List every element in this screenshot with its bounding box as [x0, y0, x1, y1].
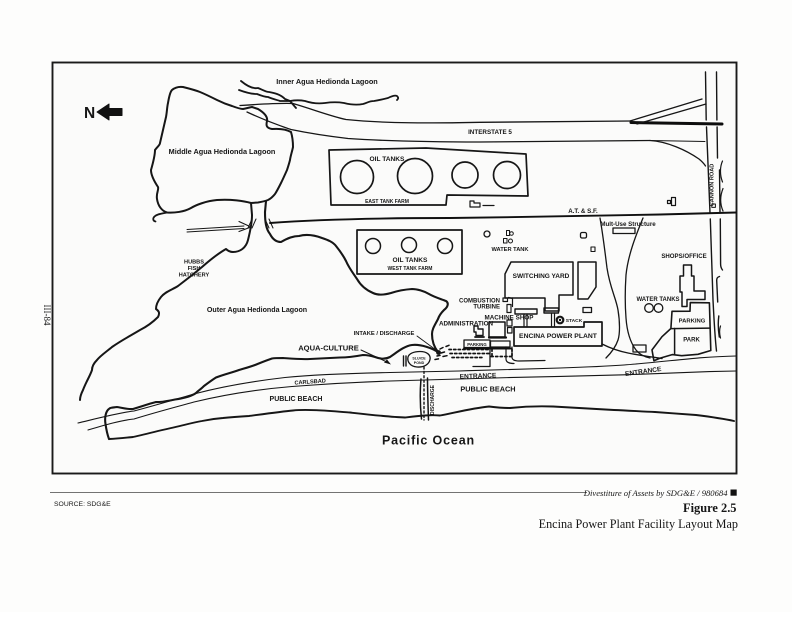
- svg-text:CANNON ROAD: CANNON ROAD: [710, 164, 716, 207]
- svg-text:STACK: STACK: [566, 318, 583, 324]
- svg-text:SWITCHING YARD: SWITCHING YARD: [513, 273, 570, 280]
- svg-text:EAST TANK FARM: EAST TANK FARM: [365, 199, 409, 205]
- svg-text:SOURCE: SDG&E: SOURCE: SDG&E: [54, 501, 111, 508]
- svg-text:WEST TANK FARM: WEST TANK FARM: [388, 266, 433, 272]
- svg-text:III-84: III-84: [42, 305, 52, 326]
- svg-text:AQUA-CULTURE: AQUA-CULTURE: [298, 344, 359, 353]
- svg-text:PARKING: PARKING: [467, 342, 487, 347]
- svg-text:TURBINE: TURBINE: [473, 305, 500, 311]
- svg-text:OIL TANKS: OIL TANKS: [393, 257, 429, 264]
- svg-text:Inner Agua Hedionda Lagoon: Inner Agua Hedionda Lagoon: [276, 77, 377, 86]
- svg-text:ENTRANCE: ENTRANCE: [460, 372, 497, 380]
- svg-text:POND: POND: [414, 361, 425, 365]
- svg-text:DISCHARGE: DISCHARGE: [430, 384, 436, 415]
- svg-text:PUBLIC BEACH: PUBLIC BEACH: [460, 385, 515, 394]
- svg-text:Pacific Ocean: Pacific Ocean: [382, 434, 475, 448]
- svg-text:HATCHERY: HATCHERY: [179, 273, 210, 279]
- svg-text:Encina Power Plant Facility La: Encina Power Plant Facility Layout Map: [539, 517, 738, 531]
- svg-text:PARKING: PARKING: [679, 319, 706, 325]
- svg-text:SLUICE: SLUICE: [412, 357, 426, 361]
- svg-text:ADMINISTRATION: ADMINISTRATION: [439, 321, 494, 328]
- svg-text:A.T. & S.F.: A.T. & S.F.: [568, 208, 598, 215]
- svg-text:INTERSTATE 5: INTERSTATE 5: [468, 129, 512, 136]
- svg-text:Mult-Use Structure: Mult-Use Structure: [600, 221, 656, 228]
- svg-text:Outer Agua Hedionda Lagoon: Outer Agua Hedionda Lagoon: [207, 306, 307, 314]
- svg-text:WATER TANK: WATER TANK: [491, 247, 529, 253]
- svg-text:OIL TANKS: OIL TANKS: [370, 156, 406, 163]
- svg-text:FISH: FISH: [188, 266, 201, 272]
- svg-text:Divestiture of Assets by SDG&E: Divestiture of Assets by SDG&E / 980684: [583, 488, 728, 498]
- svg-text:PUBLIC BEACH: PUBLIC BEACH: [270, 396, 323, 403]
- svg-text:WATER TANKS: WATER TANKS: [636, 297, 679, 303]
- svg-text:ENCINA POWER PLANT: ENCINA POWER PLANT: [519, 333, 598, 340]
- svg-text:Middle Agua Hedionda Lagoon: Middle Agua Hedionda Lagoon: [169, 147, 276, 156]
- svg-text:SHOPS/OFFICE: SHOPS/OFFICE: [661, 253, 706, 260]
- svg-text:INTAKE / DISCHARGE: INTAKE / DISCHARGE: [354, 331, 415, 337]
- svg-text:Figure 2.5: Figure 2.5: [683, 501, 736, 515]
- svg-text:PARK: PARK: [683, 338, 700, 344]
- svg-text:N: N: [84, 105, 95, 122]
- svg-text:HUBBS: HUBBS: [184, 260, 204, 266]
